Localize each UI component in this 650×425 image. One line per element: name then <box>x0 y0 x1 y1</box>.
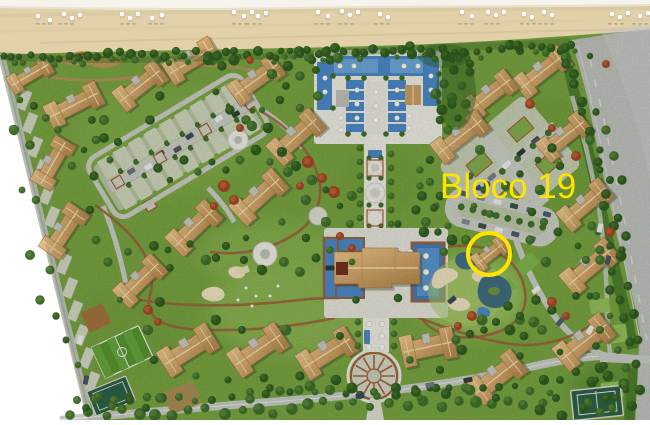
svg-text:Bloco 19: Bloco 19 <box>440 167 576 206</box>
